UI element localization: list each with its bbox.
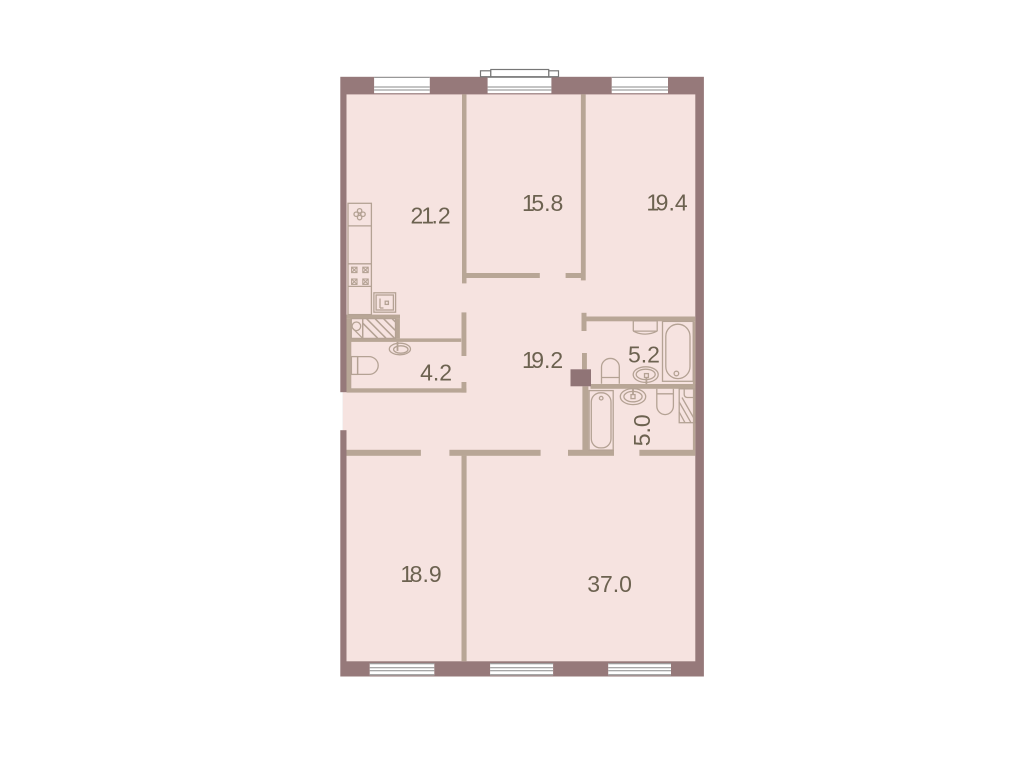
svg-text:5.0: 5.0 bbox=[629, 414, 655, 446]
svg-text:15.8: 15.8 bbox=[522, 190, 563, 216]
svg-text:19.2: 19.2 bbox=[522, 347, 563, 373]
svg-text:4.2: 4.2 bbox=[420, 360, 452, 386]
svg-text:37.0: 37.0 bbox=[587, 571, 632, 597]
svg-text:5.2: 5.2 bbox=[628, 341, 660, 367]
svg-text:18.9: 18.9 bbox=[400, 561, 441, 587]
svg-text:21.2: 21.2 bbox=[410, 203, 450, 229]
svg-text:19.4: 19.4 bbox=[646, 190, 687, 216]
